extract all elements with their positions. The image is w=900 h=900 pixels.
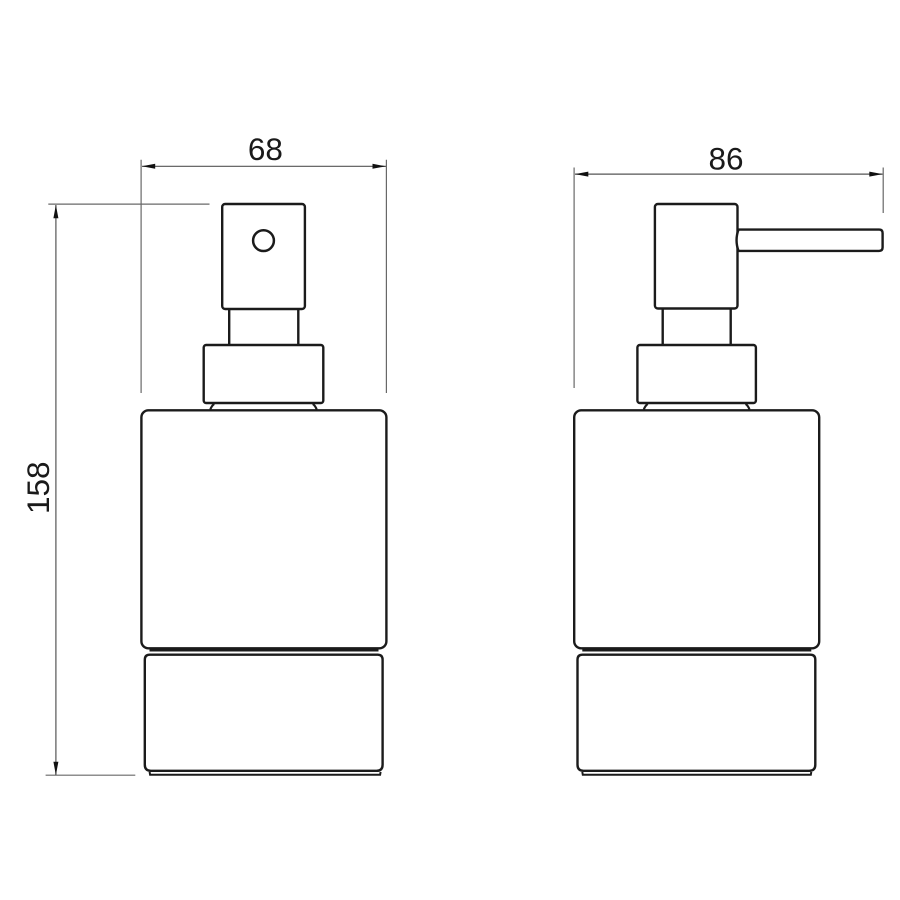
svg-text:68: 68 <box>248 131 283 167</box>
svg-text:158: 158 <box>20 461 56 514</box>
svg-text:86: 86 <box>708 141 743 177</box>
